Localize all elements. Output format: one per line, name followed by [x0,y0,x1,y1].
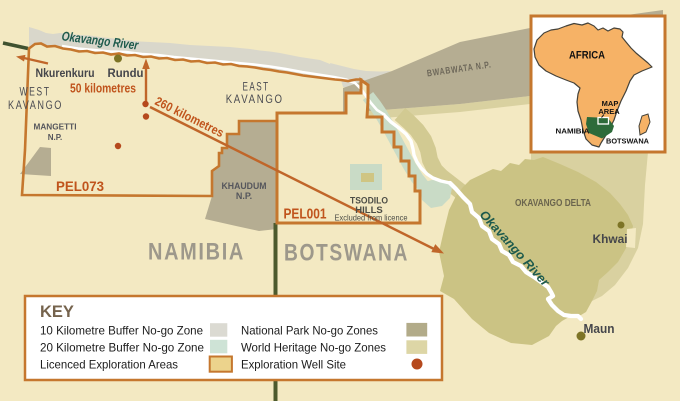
svg-text:AFRICA: AFRICA [569,50,605,62]
svg-text:PEL001: PEL001 [284,207,327,223]
svg-text:NAMIBIA: NAMIBIA [148,239,245,266]
svg-text:Khwai: Khwai [593,232,628,246]
svg-text:20 Kilometre Buffer No-go Zone: 20 Kilometre Buffer No-go Zone [40,341,204,355]
svg-text:BOTSWANA: BOTSWANA [606,137,650,146]
svg-text:Excluded from licence: Excluded from licence [335,214,409,223]
svg-text:EAST: EAST [243,81,270,93]
svg-text:World Heritage No-go Zones: World Heritage No-go Zones [241,341,386,355]
svg-text:KAVANGO: KAVANGO [226,94,284,106]
svg-text:National Park No-go Zones: National Park No-go Zones [241,324,378,338]
svg-text:BOTSWANA: BOTSWANA [284,240,409,267]
svg-text:N.P.: N.P. [48,133,63,142]
svg-text:10 Kilometre Buffer No-go Zone: 10 Kilometre Buffer No-go Zone [40,324,203,338]
svg-text:AREA: AREA [598,107,620,116]
svg-text:N.P.: N.P. [236,191,252,201]
svg-text:MANGETTI: MANGETTI [34,123,77,132]
svg-text:Maun: Maun [584,321,615,336]
svg-text:KEY: KEY [40,303,74,321]
svg-text:NAMIBIA: NAMIBIA [556,127,591,136]
svg-text:PEL073: PEL073 [56,178,104,194]
svg-text:Exploration Well Site: Exploration Well Site [241,358,346,372]
svg-text:Nkurenkuru: Nkurenkuru [36,66,95,80]
svg-text:OKAVANGO DELTA: OKAVANGO DELTA [515,198,591,209]
svg-text:KHAUDUM: KHAUDUM [222,181,267,191]
svg-text:50 kilometres: 50 kilometres [70,82,136,96]
svg-text:KAVANGO: KAVANGO [8,100,63,112]
svg-text:WEST: WEST [20,87,51,99]
svg-text:Licenced Exploration Areas: Licenced Exploration Areas [40,358,178,372]
svg-text:Rundu: Rundu [108,66,144,80]
